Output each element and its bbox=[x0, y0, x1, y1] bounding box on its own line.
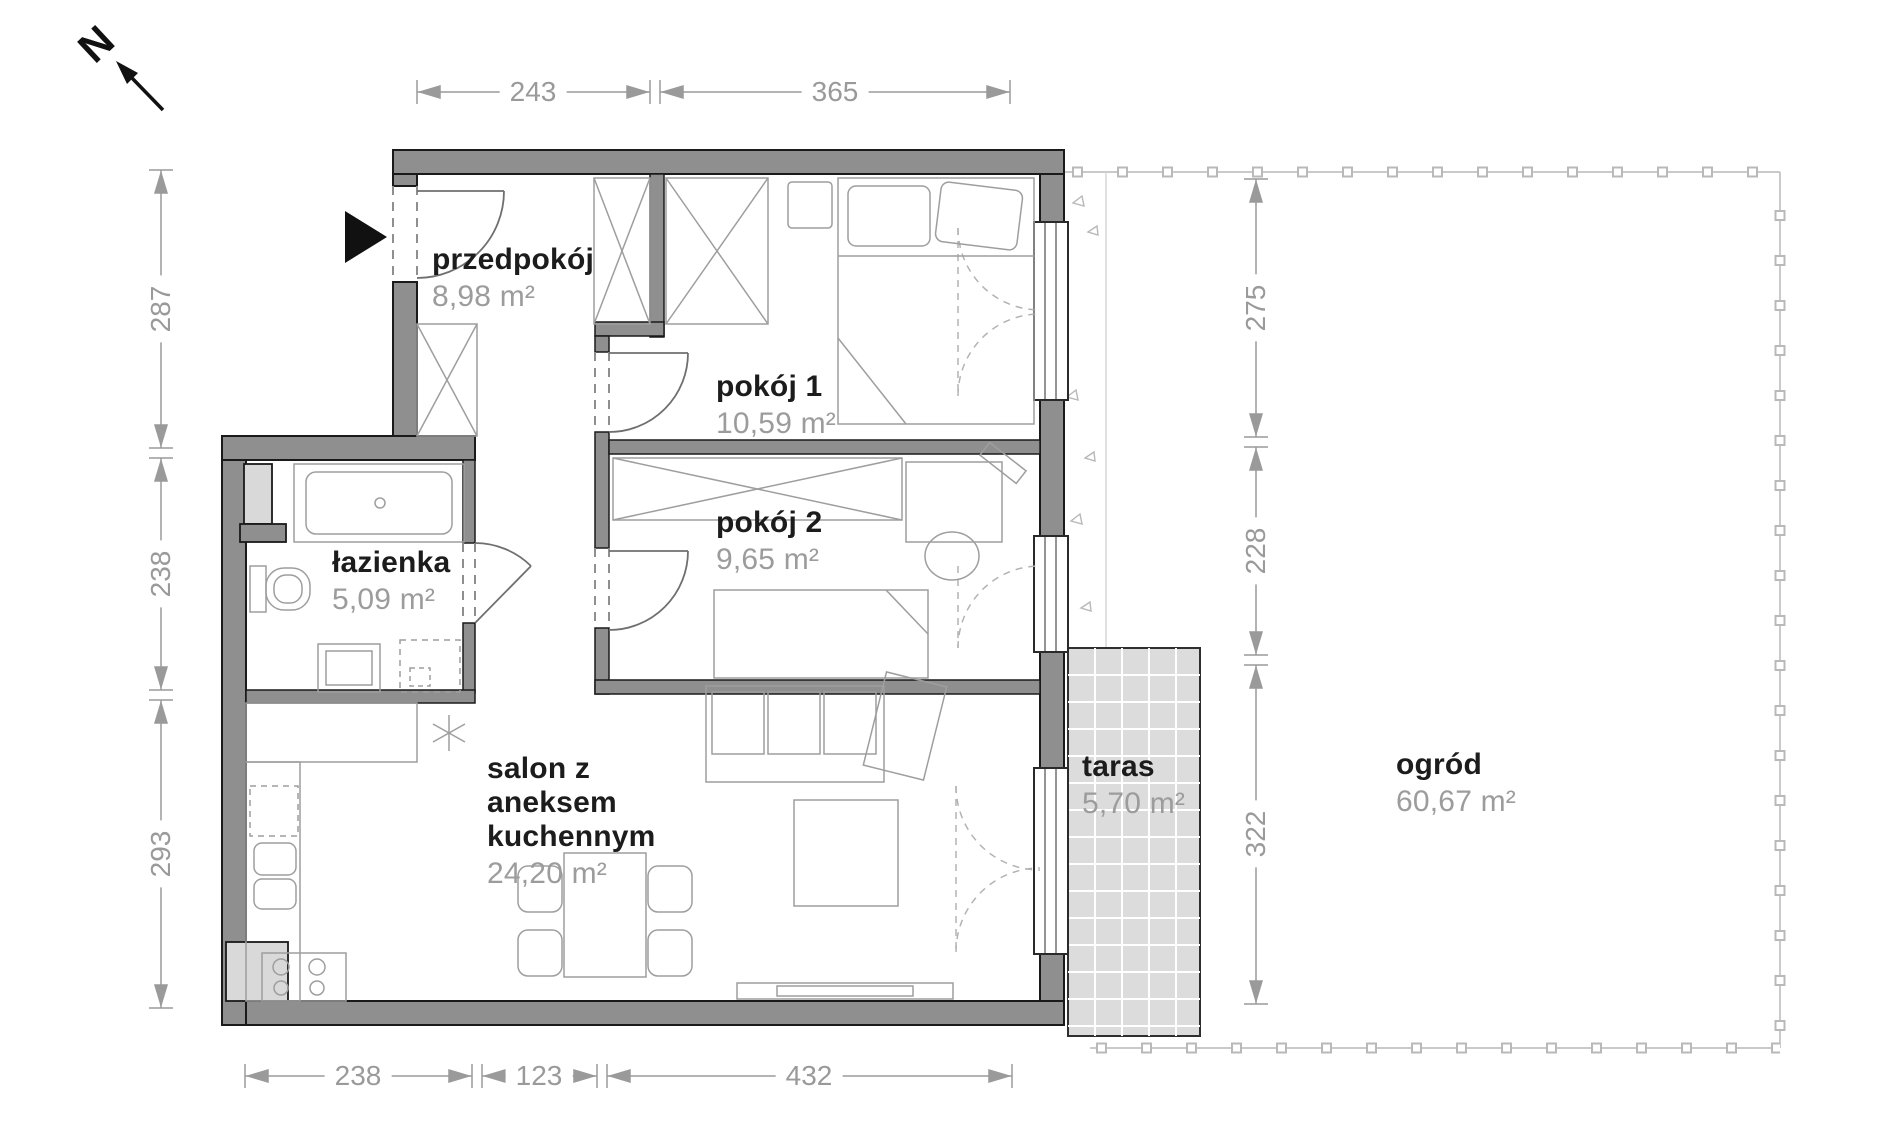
dim-bottom-238: 238 bbox=[325, 1059, 392, 1093]
room-label-przedpokoj: przedpokój 8,98 m² bbox=[432, 243, 594, 314]
dim-garden-322: 322 bbox=[1239, 801, 1273, 868]
room-area: 60,67 m² bbox=[1396, 785, 1516, 819]
floor-plan: N przedpokój 8,98 m² pokój 1 10,59 m² po… bbox=[0, 0, 1900, 1147]
room-label-lazienka: łazienka 5,09 m² bbox=[332, 546, 450, 617]
room-area: 9,65 m² bbox=[716, 543, 822, 577]
room-area: 24,20 m² bbox=[487, 857, 722, 891]
room-area: 8,98 m² bbox=[432, 280, 594, 314]
room-label-salon: salon z aneksem kuchennym 24,20 m² bbox=[487, 752, 722, 891]
window-swing-arcs bbox=[956, 228, 1040, 952]
room-name: przedpokój bbox=[432, 243, 594, 277]
room-name: pokój 2 bbox=[716, 506, 822, 540]
north-label: N bbox=[69, 16, 123, 71]
dim-garden-228: 228 bbox=[1239, 518, 1273, 585]
bathtub bbox=[294, 464, 464, 542]
north-arrow: N bbox=[69, 16, 163, 110]
dim-left-287: 287 bbox=[144, 276, 178, 343]
terrace-tiles bbox=[1068, 648, 1200, 1036]
room-label-pokoj-1: pokój 1 10,59 m² bbox=[716, 370, 836, 441]
room-name: łazienka bbox=[332, 546, 450, 580]
dim-bottom-123: 123 bbox=[506, 1059, 573, 1093]
toilet bbox=[250, 566, 266, 612]
dim-top-365: 365 bbox=[802, 75, 869, 109]
room-name: taras bbox=[1082, 750, 1185, 784]
room-label-ogrod: ogród 60,67 m² bbox=[1396, 748, 1516, 819]
sink bbox=[254, 843, 296, 875]
dim-bottom-432: 432 bbox=[776, 1059, 843, 1093]
dishwasher bbox=[250, 786, 298, 836]
dim-top-243: 243 bbox=[500, 75, 567, 109]
room-name: salon z aneksem kuchennym bbox=[487, 752, 722, 854]
room-name: pokój 1 bbox=[716, 370, 836, 404]
room-area: 5,09 m² bbox=[332, 583, 450, 617]
windows bbox=[1034, 222, 1068, 954]
dim-left-238: 238 bbox=[144, 541, 178, 608]
room-name: ogród bbox=[1396, 748, 1516, 782]
room-label-taras: taras 5,70 m² bbox=[1082, 750, 1185, 821]
dim-left-293: 293 bbox=[144, 821, 178, 888]
sofa bbox=[706, 686, 884, 782]
plan-drawing: N bbox=[0, 0, 1900, 1147]
room-label-pokoj-2: pokój 2 9,65 m² bbox=[716, 506, 822, 577]
gravel-strip bbox=[1067, 172, 1106, 648]
room-area: 10,59 m² bbox=[716, 407, 836, 441]
coffee-table bbox=[794, 800, 898, 906]
entrance-arrow-icon bbox=[345, 211, 387, 263]
dim-garden-275: 275 bbox=[1239, 275, 1273, 342]
room-area: 5,70 m² bbox=[1082, 787, 1185, 821]
